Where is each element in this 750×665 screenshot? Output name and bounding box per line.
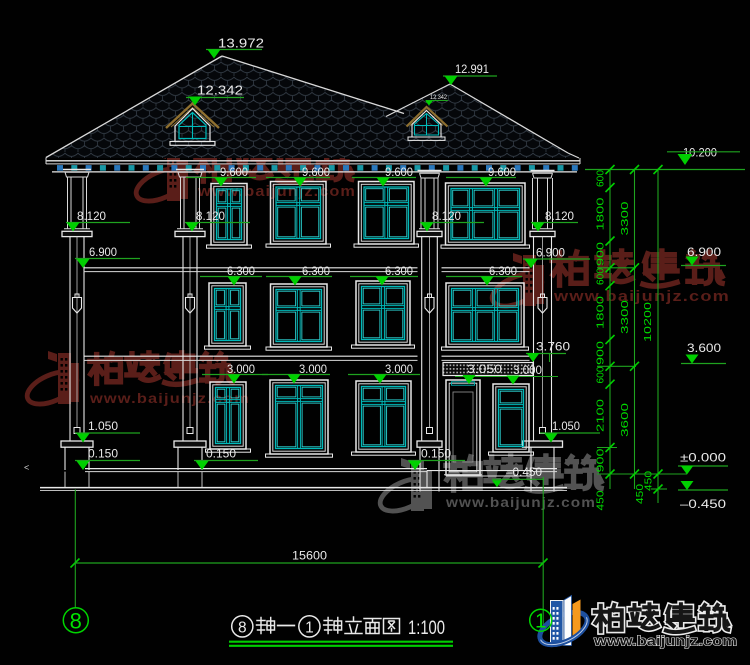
svg-text:1800: 1800 xyxy=(595,296,607,329)
svg-text:900: 900 xyxy=(595,242,607,266)
svg-text:6.900: 6.900 xyxy=(89,247,117,259)
svg-text:450: 450 xyxy=(595,490,607,510)
svg-text:www.baijunjz.com: www.baijunjz.com xyxy=(445,494,596,510)
svg-text:3.000: 3.000 xyxy=(513,365,542,377)
svg-text:3.600: 3.600 xyxy=(687,343,721,355)
svg-text:1.050: 1.050 xyxy=(552,421,580,433)
svg-text:3.050: 3.050 xyxy=(467,364,502,376)
svg-text:0.150: 0.150 xyxy=(88,448,118,460)
svg-text:www.baijunjz.com: www.baijunjz.com xyxy=(593,633,737,649)
svg-text:8: 8 xyxy=(238,619,247,636)
svg-text:1800: 1800 xyxy=(595,197,607,230)
svg-text:3.760: 3.760 xyxy=(536,342,570,354)
svg-text:10200: 10200 xyxy=(642,302,654,342)
svg-text:12.342: 12.342 xyxy=(430,94,447,101)
svg-text:1: 1 xyxy=(535,610,546,633)
svg-text:600: 600 xyxy=(595,268,607,285)
svg-text:3600: 3600 xyxy=(619,403,631,437)
svg-text:13.972: 13.972 xyxy=(218,36,264,51)
svg-text:8.120: 8.120 xyxy=(77,211,106,223)
svg-text:12.342: 12.342 xyxy=(197,84,243,98)
svg-text:8.120: 8.120 xyxy=(432,211,461,223)
svg-text:900: 900 xyxy=(595,341,607,365)
svg-text:±0.000: ±0.000 xyxy=(680,453,726,465)
svg-text:450: 450 xyxy=(643,471,655,491)
svg-text:1:100: 1:100 xyxy=(408,618,445,639)
svg-text:<: < xyxy=(24,463,29,473)
svg-text:0.150: 0.150 xyxy=(421,448,451,460)
svg-text:600: 600 xyxy=(595,366,607,383)
svg-text:3300: 3300 xyxy=(619,300,631,334)
svg-text:1: 1 xyxy=(305,619,314,636)
svg-text:900: 900 xyxy=(595,448,607,472)
svg-text:–0.450: –0.450 xyxy=(506,467,542,479)
svg-text:600: 600 xyxy=(595,170,607,187)
svg-text:15600: 15600 xyxy=(292,551,327,563)
svg-text:8: 8 xyxy=(70,608,82,633)
svg-text:www.baijunjz.com: www.baijunjz.com xyxy=(89,390,250,406)
svg-text:3300: 3300 xyxy=(619,201,631,235)
svg-text:8.120: 8.120 xyxy=(196,211,225,223)
svg-text:6.900: 6.900 xyxy=(536,248,565,260)
svg-text:2100: 2100 xyxy=(595,399,607,432)
svg-text:1.050: 1.050 xyxy=(88,421,118,433)
svg-text:–0.450: –0.450 xyxy=(680,499,726,511)
svg-text:8.120: 8.120 xyxy=(545,211,574,223)
svg-text:0.150: 0.150 xyxy=(206,448,236,460)
svg-text:12.991: 12.991 xyxy=(455,64,489,76)
